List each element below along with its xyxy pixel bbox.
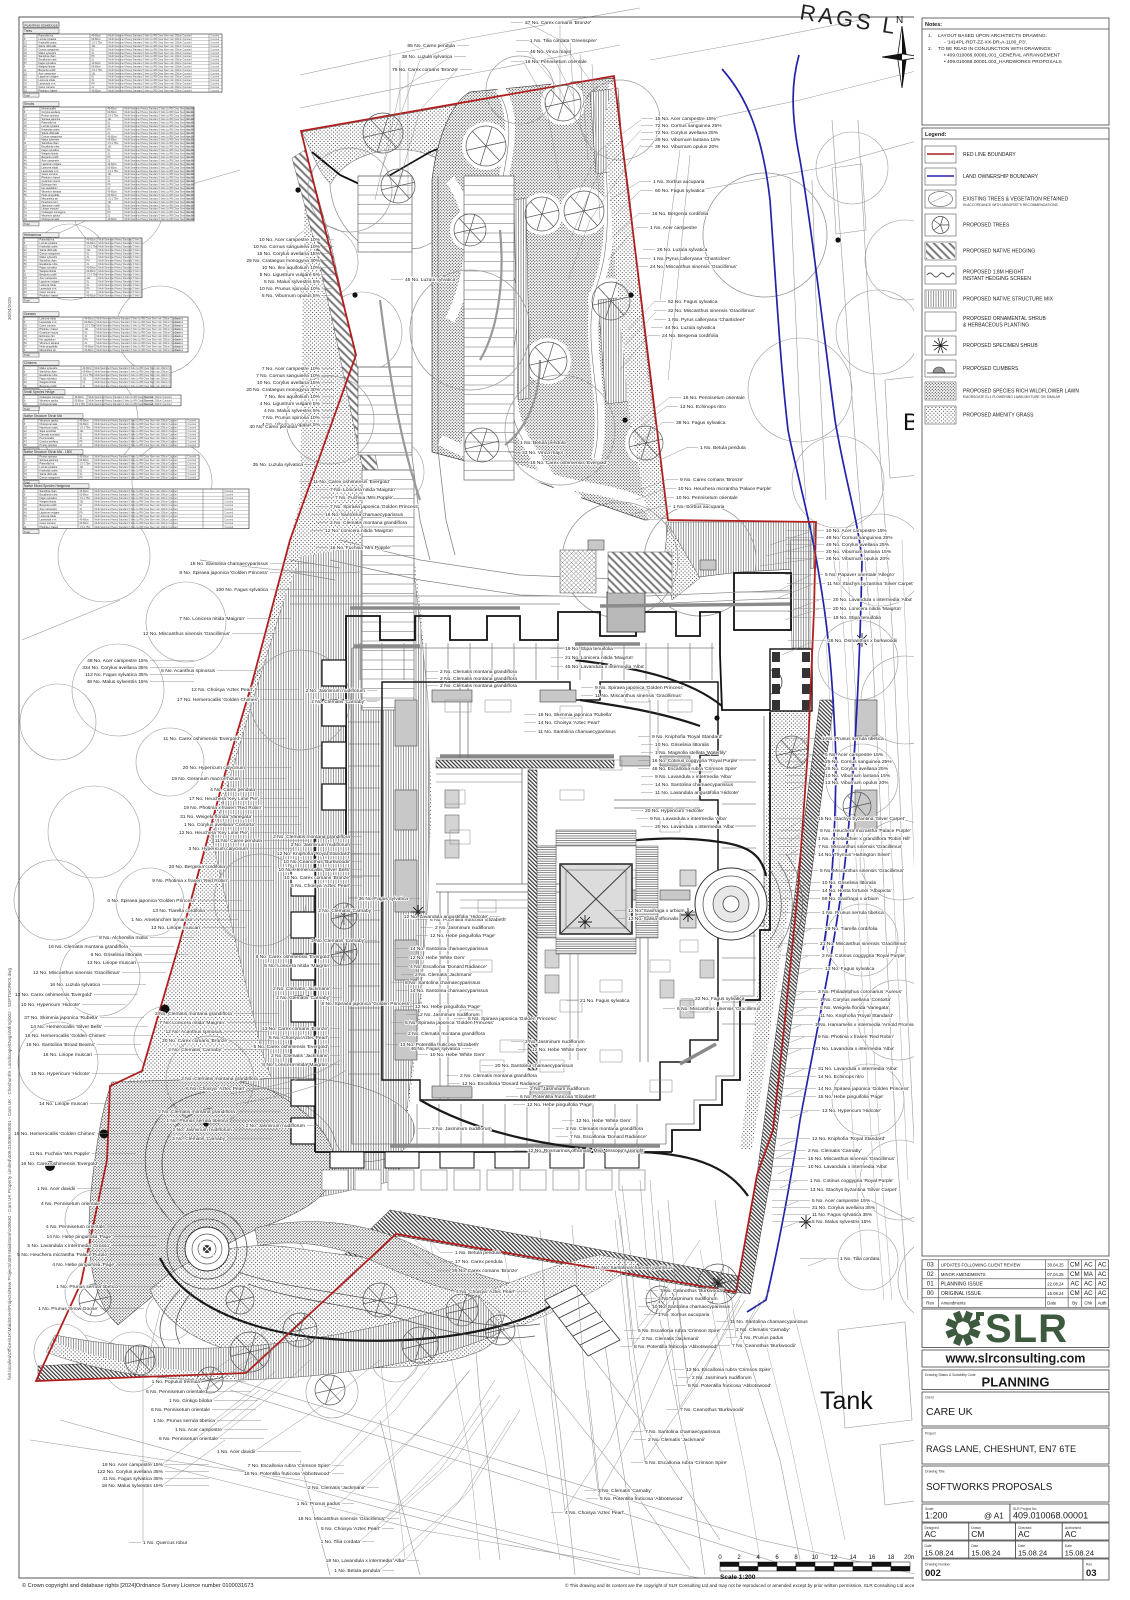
svg-text:Total: Total — [24, 407, 30, 411]
svg-text:Counted: Counted — [211, 62, 220, 65]
svg-text:Total: Total — [24, 93, 30, 97]
svg-text:Counted: Counted — [188, 441, 197, 444]
svg-text:26 No. Viburnum opulus 20%: 26 No. Viburnum opulus 20% — [826, 556, 890, 562]
svg-text:5 No. Papaver orientale 'Alleg: 5 No. Papaver orientale 'Allegro' — [825, 572, 895, 578]
svg-text:1 No. Corylus avellana 'Contor: 1 No. Corylus avellana 'Contorta' — [184, 822, 255, 828]
svg-text:5 No. Escallonia rubra 'Crimso: 5 No. Escallonia rubra 'Crimson Spire' — [645, 1460, 727, 1466]
svg-text:Counted: Counted — [225, 511, 234, 514]
svg-text:60-80cm: 60-80cm — [75, 399, 84, 402]
svg-text:& HERBACEOUS PLANTING: & HERBACEOUS PLANTING — [963, 322, 1029, 328]
svg-text:10 No. Heuchera micrantha 'Pal: 10 No. Heuchera micrantha 'Palace Purple… — [678, 486, 772, 492]
svg-text:11 No. Stachys byzantina 'Silv: 11 No. Stachys byzantina 'Silver Carpet' — [827, 581, 914, 587]
svg-text:8 No. Lonicera nitida 'Maigrün: 8 No. Lonicera nitida 'Maigrün' — [262, 1062, 328, 1068]
svg-text:1 No. Betula pendula: 1 No. Betula pendula — [455, 1250, 501, 1256]
svg-text:10 No. Santolina chamaecyparis: 10 No. Santolina chamaecyparissus — [652, 1304, 731, 1310]
svg-text:Counted: Counted — [188, 463, 197, 466]
svg-text:Multi-Stemmed Heavy Standard 3: Multi-Stemmed Heavy Standard 3 brks 1u R… — [95, 444, 179, 447]
svg-text:Rev: Rev — [926, 1301, 935, 1306]
svg-text:9 No. Photinia x fraseri 'Red: 9 No. Photinia x fraseri 'Red Robin' — [818, 1034, 894, 1040]
svg-text:Multi-Stemmed Heavy Standard 3: Multi-Stemmed Heavy Standard 3 brks 1u R… — [95, 367, 179, 370]
svg-text:www.slrconsulting.com: www.slrconsulting.com — [945, 1352, 1086, 1366]
svg-text:2 No. Clematis montana grandif: 2 No. Clematis montana grandiflora — [440, 669, 517, 675]
svg-text:15.08.24: 15.08.24 — [925, 1549, 954, 1558]
svg-text:13 No. Carex comans 'Bronze': 13 No. Carex comans 'Bronze' — [262, 1026, 328, 1032]
svg-text:Chk: Chk — [1084, 1301, 1093, 1306]
svg-text:38 No. Fagus sylvatica: 38 No. Fagus sylvatica — [676, 420, 726, 426]
svg-text:20 No. Bergenia cordifolia: 20 No. Bergenia cordifolia — [169, 864, 226, 870]
svg-text:7 No. Spiraea japonica 'Golden: 7 No. Spiraea japonica 'Golden Princess' — [330, 504, 419, 510]
svg-text:9 No. Kniphofia 'Royal Standar: 9 No. Kniphofia 'Royal Standard' — [652, 734, 722, 740]
svg-text:Counted: Counted — [225, 519, 234, 522]
svg-text:16 No. Hemerocallis 'Golden Ch: 16 No. Hemerocallis 'Golden Chimes' — [14, 1131, 95, 1137]
svg-text:46 No. Escallonia rubra 'Crims: 46 No. Escallonia rubra 'Crimson Spire' — [652, 766, 737, 772]
svg-text:79 No. Carex comans 'Bronze': 79 No. Carex comans 'Bronze' — [392, 67, 458, 73]
svg-text:PROPOSED NATIVE HEDGING: PROPOSED NATIVE HEDGING — [963, 249, 1035, 255]
svg-text:20 No. Hypericum 'Hidcote': 20 No. Hypericum 'Hidcote' — [645, 808, 704, 814]
svg-text:2 No. Clematis 'Jackmanii': 2 No. Clematis 'Jackmanii' — [648, 1437, 705, 1443]
svg-text:Counted: Counted — [225, 504, 234, 507]
svg-text:18 No. Miscanthus sinensis 'Gr: 18 No. Miscanthus sinensis 'Gracillimus' — [298, 1516, 385, 1522]
svg-text:7 No. Acer campestre 10%: 7 No. Acer campestre 10% — [262, 366, 321, 372]
svg-text:49 No. Corylus avellana 25%: 49 No. Corylus avellana 25% — [826, 542, 890, 548]
svg-text:20 No. Crataegus monogyna 30%: 20 No. Crataegus monogyna 30% — [246, 387, 320, 393]
svg-text:00: 00 — [927, 1290, 934, 1297]
svg-text:CM: CM — [1070, 1271, 1080, 1278]
svg-text:Fagus sylvatica: Fagus sylvatica — [40, 378, 58, 381]
svg-text:Multi-Stemmed Heavy Standard 3: Multi-Stemmed Heavy Standard 3 brks 1u R… — [95, 477, 179, 480]
svg-text:37 No. Skimmia japonica 'Rubel: 37 No. Skimmia japonica 'Rubella' — [24, 1015, 98, 1021]
svg-text:INSTANT HEDGING SCREEN: INSTANT HEDGING SCREEN — [963, 276, 1031, 282]
svg-text:21 No. Fagus sylvatica: 21 No. Fagus sylvatica — [580, 998, 630, 1004]
svg-text:1 No. Betula pendula: 1 No. Betula pendula — [334, 1568, 380, 1574]
svg-text:Counted: Counted — [211, 65, 220, 68]
svg-text:100 No. Fagus sylvatica: 100 No. Fagus sylvatica — [216, 587, 268, 593]
svg-text:Native Structure Shrub Mix - 1: Native Structure Shrub Mix - 1800 — [24, 450, 72, 454]
svg-text:CM: CM — [971, 1529, 984, 1539]
svg-text:8 No. Spiraea japonica 'Golden: 8 No. Spiraea japonica 'Golden Princess' — [468, 1016, 557, 1022]
svg-text:2 No. Clematis montana grandif: 2 No. Clematis montana grandiflora — [440, 683, 517, 689]
svg-text:Counted: Counted — [211, 89, 220, 92]
svg-text:13 No. Viburnum opulus 20%: 13 No. Viburnum opulus 20% — [825, 780, 889, 786]
svg-text:44 No. Luzula sylvatica: 44 No. Luzula sylvatica — [665, 325, 716, 331]
svg-text:12 No. Lavandula angustifolia: 12 No. Lavandula angustifolia 'Hidcote' — [404, 914, 488, 920]
svg-text:2 No. Jasminum nudiflorum: 2 No. Jasminum nudiflorum — [525, 1039, 585, 1045]
svg-text:10 No. Hebe 'White Gem': 10 No. Hebe 'White Gem' — [430, 1052, 485, 1058]
svg-text:Counted: Counted — [211, 83, 220, 86]
svg-text:45 No. Luzula sylvatica: 45 No. Luzula sylvatica — [405, 277, 456, 283]
svg-text:18 No. Acer campestre 15%: 18 No. Acer campestre 15% — [102, 1462, 164, 1468]
svg-text:2 No. Clematis 'Carnaby': 2 No. Clematis 'Carnaby' — [598, 1488, 652, 1494]
svg-text:Tank: Tank — [820, 1387, 873, 1415]
svg-text:33 No. Vinca major: 33 No. Vinca major — [522, 450, 564, 456]
svg-text:Counted: Counted — [225, 515, 234, 518]
svg-text:EXISTING TREES & VEGETATION RE: EXISTING TREES & VEGETATION RETAINED — [963, 197, 1069, 203]
svg-text:Cornus sanguinea: Cornus sanguinea — [40, 477, 61, 480]
svg-text:1 No. Pyrus calleryana 'Chanti: 1 No. Pyrus calleryana 'Chanticleer' — [668, 317, 745, 323]
svg-text:4 No. Carex pendula: 4 No. Carex pendula — [210, 787, 255, 793]
svg-text:10 No. Ilex aquifolium 10%: 10 No. Ilex aquifolium 10% — [262, 265, 321, 271]
svg-text:Ligustrum vulgare: Ligustrum vulgare — [40, 511, 60, 514]
svg-text:1 No. Ginkgo biloba: 1 No. Ginkgo biloba — [169, 1398, 212, 1404]
svg-text:- '1414PL-RDT-ZZ-XX-DR-A-11: - '1414PL-RDT-ZZ-XX-DR-A-1100_P3'. — [944, 40, 1027, 46]
svg-text:15.08.24: 15.08.24 — [971, 1549, 1000, 1558]
svg-text:14 No. Santolina chamaecyparis: 14 No. Santolina chamaecyparissus — [410, 988, 489, 994]
svg-text:02: 02 — [927, 1271, 934, 1278]
svg-text:Grasses: Grasses — [24, 312, 36, 316]
svg-text:AC: AC — [1084, 1281, 1093, 1288]
svg-text:Counted: Counted — [145, 396, 154, 399]
svg-text:7 No. Prunus spinosa 10%: 7 No. Prunus spinosa 10% — [262, 415, 321, 421]
svg-text:Date: Date — [1018, 1544, 1025, 1548]
svg-text:7 No. Lonicera nitida 'Maigrün: 7 No. Lonicera nitida 'Maigrün' — [330, 487, 396, 493]
svg-text:Counted: Counted — [188, 470, 197, 473]
svg-text:16 No. Carex oshimensis 'Everg: 16 No. Carex oshimensis 'Evergold' — [21, 1161, 98, 1167]
svg-text:21 No. Lonicera nitida 'Maigrü: 21 No. Lonicera nitida 'Maigrün' — [565, 655, 634, 661]
svg-text:By: By — [1072, 1301, 1078, 1306]
svg-text:Counted: Counted — [225, 522, 234, 525]
svg-text:2 No. Clematis montana grandif: 2 No. Clematis montana grandiflora — [330, 520, 407, 526]
svg-text:7 No. Santolina chamaecypariss: 7 No. Santolina chamaecyparissus — [645, 1429, 721, 1435]
svg-text:19 No. Stipa tenuifolia: 19 No. Stipa tenuifolia — [565, 646, 613, 652]
svg-text:SOFTWORKS PROPOSALS: SOFTWORKS PROPOSALS — [926, 1482, 1053, 1493]
svg-text:RED LINE BOUNDARY: RED LINE BOUNDARY — [963, 152, 1016, 158]
svg-text:40-60cm: 40-60cm — [75, 396, 84, 399]
svg-text:Multi-Stemmed Heavy Standard 3: Multi-Stemmed Heavy Standard 3 brks 1u R… — [89, 403, 173, 406]
svg-text:Acer campestre: Acer campestre — [40, 508, 58, 511]
svg-text:14 No. Liriope muscari: 14 No. Liriope muscari — [39, 1101, 88, 1107]
svg-text:2.: 2. — [928, 46, 932, 52]
svg-text:15.08.24: 15.08.24 — [1018, 1549, 1047, 1558]
svg-text:Counted: Counted — [188, 430, 197, 433]
svg-text:10 No. Carex comans 'Bronze': 10 No. Carex comans 'Bronze' — [284, 875, 350, 881]
svg-text:10 No. Acer campestre 15%: 10 No. Acer campestre 15% — [826, 528, 888, 534]
svg-text:1 No. Corylus avellana 'Contor: 1 No. Corylus avellana 'Contorta' — [820, 997, 891, 1003]
svg-text:10 No. Griselinia littoralis: 10 No. Griselinia littoralis — [822, 880, 877, 886]
svg-text:10 No. Corylus avellana 15%: 10 No. Corylus avellana 15% — [257, 380, 321, 386]
svg-text:11 No. Carex oshimensis 'Everg: 11 No. Carex oshimensis 'Evergold' — [163, 736, 240, 742]
svg-text:PROPOSED ORNAMENTAL SHRUB: PROPOSED ORNAMENTAL SHRUB — [963, 316, 1046, 322]
svg-text:6 No. Potentilla fruticosa 'El: 6 No. Potentilla fruticosa 'Elizabeth' — [520, 1094, 596, 1100]
svg-text:Photinia x fraseri: Photinia x fraseri — [39, 89, 58, 92]
svg-text:6 No. Pennisetum orientale: 6 No. Pennisetum orientale — [146, 1389, 205, 1395]
svg-text:2 No. Jasminum nudiflorum: 2 No. Jasminum nudiflorum — [432, 1126, 492, 1132]
svg-text:5 No. Malus sylvestris 15%: 5 No. Malus sylvestris 15% — [812, 1219, 871, 1225]
svg-text:13 No. Hebe 'White Gem': 13 No. Hebe 'White Gem' — [576, 1118, 631, 1124]
svg-text:Counted: Counted — [188, 473, 197, 476]
svg-text:15.08.24: 15.08.24 — [1065, 1549, 1094, 1558]
svg-text:1:200: 1:200 — [925, 1511, 948, 1521]
svg-text:Native Structure Shrub Mix: Native Structure Shrub Mix — [24, 414, 62, 418]
svg-text:5 No. Lonicera nitida 'Maigrün: 5 No. Lonicera nitida 'Maigrün' — [264, 963, 330, 969]
svg-text:60-80cm: 60-80cm — [85, 349, 94, 352]
svg-text:13 No. Hypericum 'Hidcote': 13 No. Hypericum 'Hidcote' — [822, 1108, 881, 1114]
svg-text:5 No. Viburnum opulus 5%: 5 No. Viburnum opulus 5% — [262, 293, 321, 299]
svg-text:40-60cm: 40-60cm — [80, 490, 89, 493]
svg-text:6 No. Miscanthus sinensis 'Gra: 6 No. Miscanthus sinensis 'Gracillimus' — [677, 1006, 761, 1012]
svg-text:2 No. Jasminum nudiflorum: 2 No. Jasminum nudiflorum — [658, 1296, 718, 1302]
svg-text:11 No. Lavandula angustifolia: 11 No. Lavandula angustifolia 'Hidcote' — [655, 790, 739, 796]
svg-text:Multi-Stemmed Heavy Standard 3: Multi-Stemmed Heavy Standard 3 brks 1u R… — [95, 501, 179, 504]
svg-text:41 No. Fagus sylvatica 35%: 41 No. Fagus sylvatica 35% — [102, 1476, 163, 1482]
svg-text:40-60cm: 40-60cm — [83, 367, 92, 370]
svg-text:Santolina cham.: Santolina cham. — [40, 370, 58, 373]
svg-text:5 No. Lavandula x intermedia ': 5 No. Lavandula x intermedia 'Grosso' — [27, 1243, 110, 1249]
svg-text:11 No. Santolina chamaecyparis: 11 No. Santolina chamaecyparissus — [730, 1319, 808, 1325]
svg-text:15 No. Hypericum 'Hidcote': 15 No. Hypericum 'Hidcote' — [31, 1071, 90, 1077]
svg-text:07.04.25: 07.04.25 — [1047, 1272, 1064, 1277]
svg-text:7 No. Escallonia 'Donard Radia: 7 No. Escallonia 'Donard Radiance' — [570, 1134, 647, 1140]
svg-text:Crataegus monogyna: Crataegus monogyna — [40, 396, 65, 399]
svg-text:40 No. Carex pendula: 40 No. Carex pendula — [249, 424, 297, 430]
svg-text:5 No. Ligustrum vulgare 5%: 5 No. Ligustrum vulgare 5% — [260, 272, 321, 278]
svg-text:Multi-Stemmed Heavy Standard 3: Multi-Stemmed Heavy Standard 3 brks 1u R… — [95, 374, 179, 377]
svg-text:Counted: Counted — [188, 459, 197, 462]
svg-text:Escallonia rubra: Escallonia rubra — [40, 374, 59, 377]
svg-text:14 No. Santolina chamaecyparis: 14 No. Santolina chamaecyparissus — [410, 946, 489, 952]
svg-text:20 No. Carex comans 'Bronze': 20 No. Carex comans 'Bronze' — [162, 1038, 228, 1044]
svg-text:45 No. Lavandula x intermedia: 45 No. Lavandula x intermedia 'Alba' — [565, 664, 644, 670]
svg-text:1 No. Sorbus aucuparia: 1 No. Sorbus aucuparia — [658, 1312, 710, 1318]
svg-text:Trees: Trees — [24, 29, 32, 33]
svg-text:CM: CM — [1070, 1262, 1080, 1269]
svg-text:25 No. Corylus avellana 25%: 25 No. Corylus avellana 25% — [825, 766, 889, 772]
svg-text:14 No. Choisya 'Aztec Pearl': 14 No. Choisya 'Aztec Pearl' — [538, 720, 600, 726]
svg-text:14 No. Spiraea japonica 'Golde: 14 No. Spiraea japonica 'Golden Princess… — [818, 1086, 909, 1092]
svg-text:2 No. Jasminum nudiflorum: 2 No. Jasminum nudiflorum — [305, 688, 365, 694]
svg-text:40-60cm: 40-60cm — [80, 519, 89, 522]
svg-text:Counted: Counted — [188, 444, 197, 447]
svg-text:2 No. Clematis montana grandif: 2 No. Clematis montana grandiflora — [566, 1126, 643, 1132]
svg-text:16 No. Santolina chamaecyparis: 16 No. Santolina chamaecyparissus — [325, 512, 404, 518]
svg-text:PROPOSED SPECIES RICH WILDFLOW: PROPOSED SPECIES RICH WILDFLOWER LAWN — [963, 389, 1079, 395]
svg-text:2 No. Clematis montana grandif: 2 No. Clematis montana grandiflora — [181, 1076, 258, 1082]
svg-text:Counted: Counted — [211, 35, 220, 38]
svg-text:1 No. Quercus robur: 1 No. Quercus robur — [143, 1540, 188, 1546]
svg-text:EMORSGATE EL1 FLOWERING LAWN M: EMORSGATE EL1 FLOWERING LAWN MIXTURE OR … — [963, 395, 1061, 399]
svg-text:Counted: Counted — [211, 38, 220, 41]
svg-text:Total: Total — [24, 299, 30, 303]
svg-text:PLANNING ISSUE: PLANNING ISSUE — [941, 1282, 984, 1288]
svg-text:Rev.: Rev. — [1086, 1563, 1093, 1567]
svg-text:6 No. Pennisetum orientale: 6 No. Pennisetum orientale — [151, 1407, 210, 1413]
svg-text:12 No. Rosmarinus officinalis: 12 No. Rosmarinus officinalis 'Miss Jess… — [528, 1148, 645, 1154]
svg-text:2 No. Clematis montana grandif: 2 No. Clematis montana grandiflora — [460, 1073, 537, 1079]
svg-text:2 No. Clematis 'Jackmanii': 2 No. Clematis 'Jackmanii' — [415, 972, 472, 978]
svg-text:AC: AC — [1098, 1271, 1107, 1278]
svg-text:IN ACCORDANCE WITH ARBORIST'S: IN ACCORDANCE WITH ARBORIST'S RECOMMENDA… — [963, 203, 1059, 207]
svg-text:8 No. Santolina chamaecypariss: 8 No. Santolina chamaecyparissus — [405, 980, 481, 986]
svg-text:26 No. Osmanthus x burkwoodii: 26 No. Osmanthus x burkwoodii — [828, 638, 897, 644]
svg-text:14 No. Hemerocallis 'Silver Be: 14 No. Hemerocallis 'Silver Bells' — [31, 1024, 103, 1030]
svg-text:Multi-Stemmed Heavy Standard 3: Multi-Stemmed Heavy Standard 3 brks 1u R… — [109, 89, 193, 92]
svg-text:13 No. Tiarella cordifolia: 13 No. Tiarella cordifolia — [153, 908, 206, 914]
svg-text:1 No. Cotinus coggygria 'Royal: 1 No. Cotinus coggygria 'Royal Purple' — [810, 1178, 893, 1184]
svg-text:20 No. Viburnum lantana 15%: 20 No. Viburnum lantana 15% — [826, 549, 892, 555]
svg-text:18 No. Lavandula x intermedia: 18 No. Lavandula x intermedia 'Alba' — [326, 1558, 405, 1564]
svg-text:1 No. Populus tremula: 1 No. Populus tremula — [152, 1379, 201, 1385]
svg-text:8 No. Spiraea japonica 'Golden: 8 No. Spiraea japonica 'Golden Princess' — [321, 1001, 410, 1007]
svg-text:10: 10 — [812, 1555, 819, 1561]
svg-text:Counted: Counted — [211, 48, 220, 51]
svg-text:16 No. Bergenia cordifolia: 16 No. Bergenia cordifolia — [652, 211, 709, 217]
svg-text:31 No. Lavandula x intermedia: 31 No. Lavandula x intermedia 'Alba' — [818, 1066, 897, 1072]
svg-text:Multi-Stemmed Heavy Standard 3: Multi-Stemmed Heavy Standard 3 brks 1u R… — [95, 522, 179, 525]
svg-text:5 No. Heuchera micrantha 'Pala: 5 No. Heuchera micrantha 'Palace Purple' — [17, 1252, 108, 1258]
svg-text:7 No. Fuchsia 'Mrs Popple': 7 No. Fuchsia 'Mrs Popple' — [335, 495, 393, 501]
svg-text:1 No. Betula pendula: 1 No. Betula pendula — [700, 445, 746, 451]
svg-text:20 No. Lavandula x intermedia: 20 No. Lavandula x intermedia 'Alba' — [655, 824, 734, 830]
svg-text:CARE UK: CARE UK — [926, 1406, 973, 1418]
svg-text:9 No. Lavandula x intermedia ': 9 No. Lavandula x intermedia 'Alba' — [650, 816, 727, 822]
svg-text:10 No. Ceanothus 'Burkwoodii': 10 No. Ceanothus 'Burkwoodii' — [283, 859, 350, 865]
svg-text:Counted: Counted — [211, 79, 220, 82]
svg-text:409.010068.00001: 409.010068.00001 — [1013, 1511, 1088, 1521]
svg-text:40-60cm: 40-60cm — [108, 218, 117, 221]
svg-text:7 No. Ceanothus 'Burkwoodii': 7 No. Ceanothus 'Burkwoodii' — [680, 1407, 744, 1413]
svg-text:31 No. Weigela florida 'Varieg: 31 No. Weigela florida 'Variegata' — [180, 814, 252, 820]
svg-text:11 No. Carex oshimensis 'Everg: 11 No. Carex oshimensis 'Evergold' — [313, 479, 390, 485]
svg-text:122 No. Corylus avellana 35%: 122 No. Corylus avellana 35% — [97, 1469, 163, 1475]
svg-text:14 No. Thymus 'Hartington Silv: 14 No. Thymus 'Hartington Silver' — [818, 852, 891, 858]
svg-text:Bergenia cordif.: Bergenia cordif. — [40, 504, 58, 507]
svg-text:30/04/2025: 30/04/2025 — [7, 297, 12, 320]
svg-text:N: N — [896, 15, 903, 26]
svg-text:60-80cm: 60-80cm — [80, 493, 89, 496]
svg-text:2 No. Jasminum nudiflorum: 2 No. Jasminum nudiflorum — [530, 1086, 590, 1092]
svg-text:5 No. Acer campestre 15%: 5 No. Acer campestre 15% — [812, 1198, 871, 1204]
svg-text:Counted: Counted — [145, 403, 154, 406]
svg-text:AC: AC — [1084, 1290, 1093, 1297]
svg-text:13 No. Stachys byzantina 'Silv: 13 No. Stachys byzantina 'Silver Carpet' — [810, 1187, 897, 1193]
svg-text:Counted: Counted — [188, 456, 197, 459]
svg-text:10 No. Acer campestre 10%: 10 No. Acer campestre 10% — [259, 237, 321, 243]
svg-text:48 No. Malus sylvestris 15%: 48 No. Malus sylvestris 15% — [87, 679, 149, 685]
svg-text:PROPOSED CLIMBERS: PROPOSED CLIMBERS — [963, 366, 1019, 372]
svg-text:Counted: Counted — [225, 501, 234, 504]
svg-text:Drawing Title: Drawing Title — [925, 1470, 945, 1474]
svg-text:Counted: Counted — [225, 493, 234, 496]
svg-text:Date: Date — [1047, 1301, 1057, 1306]
svg-text:15 No. Acer campestre 15%: 15 No. Acer campestre 15% — [655, 116, 717, 122]
svg-text:2 No. Clematis 'Jackmanii': 2 No. Clematis 'Jackmanii' — [273, 986, 330, 992]
svg-text:Counted: Counted — [188, 466, 197, 469]
svg-text:10 No. Hemerocallis 'Silver Be: 10 No. Hemerocallis 'Silver Bells' — [279, 867, 351, 873]
svg-text:8 No. Alchemilla mollis: 8 No. Alchemilla mollis — [99, 935, 148, 941]
svg-text:1 No. Acer campestre: 1 No. Acer campestre — [175, 1427, 222, 1433]
svg-text:13 No. Liriope muscari: 13 No. Liriope muscari — [87, 960, 136, 966]
svg-text:29 No. Viburnum lantana 15%: 29 No. Viburnum lantana 15% — [655, 137, 721, 143]
svg-text:Legend:: Legend: — [925, 132, 947, 138]
svg-text:Counted: Counted — [211, 45, 220, 48]
svg-text:16: 16 — [869, 1555, 876, 1561]
svg-text:29 No. Tiarella cordifolia: 29 No. Tiarella cordifolia — [825, 926, 878, 932]
svg-text:Total: Total — [24, 353, 30, 357]
svg-text:1 No. Sorbus aucuparia: 1 No. Sorbus aucuparia — [673, 504, 725, 510]
svg-text:Lavandula x int.: Lavandula x int. — [40, 519, 58, 522]
svg-text:© Crown copyright and database: © Crown copyright and database rights [2… — [22, 1582, 253, 1589]
svg-text:Fagus sylvatica: Fagus sylvatica — [40, 497, 58, 500]
svg-text:30.04.25: 30.04.25 — [1047, 1263, 1064, 1268]
svg-text:PROPOSED SPECIMEN SHRUB: PROPOSED SPECIMEN SHRUB — [963, 343, 1038, 349]
svg-text:AC: AC — [1098, 1262, 1107, 1269]
svg-text:Counted: Counted — [188, 434, 197, 437]
svg-text:AC: AC — [1098, 1281, 1107, 1288]
svg-text:Counted: Counted — [188, 427, 197, 430]
svg-text:13 No. Carex oshimensis 'Everg: 13 No. Carex oshimensis 'Evergold' — [15, 992, 92, 998]
svg-text:32 No. Miscanthus sinensis 'Gr: 32 No. Miscanthus sinensis 'Gracillimus' — [668, 308, 755, 314]
svg-text:1 No. Prunus serrula tibetica: 1 No. Prunus serrula tibetica — [56, 1284, 118, 1290]
svg-text:10 No. Pennisetum orientale: 10 No. Pennisetum orientale — [676, 495, 738, 501]
svg-text:Choisya ternata: Choisya ternata — [40, 403, 58, 406]
svg-text:RAGS LANE, CHESHUNT, EN7 6TE: RAGS LANE, CHESHUNT, EN7 6TE — [926, 1444, 1076, 1454]
svg-text:11 No. Kniphofia 'Royal Standa: 11 No. Kniphofia 'Royal Standard' — [820, 1013, 893, 1019]
svg-text:11 No. Carex pendula: 11 No. Carex pendula — [215, 838, 262, 844]
svg-text:39 No. Viburnum opulus 20%: 39 No. Viburnum opulus 20% — [655, 144, 719, 150]
svg-text:1 No. Prunus serrula tibetica: 1 No. Prunus serrula tibetica — [166, 1118, 228, 1124]
svg-text:Project: Project — [925, 1432, 936, 1436]
svg-text:1 No. Tilia cordata 'Greenspir: 1 No. Tilia cordata 'Greenspire' — [530, 38, 597, 44]
svg-text:Climbers: Climbers — [24, 361, 37, 365]
svg-text:40-60cm: 40-60cm — [87, 295, 96, 298]
svg-text:Counted: Counted — [225, 497, 234, 500]
svg-text:8 No. Potentilla fruticosa 'Ab: 8 No. Potentilla fruticosa 'Abbotswood' — [688, 1383, 771, 1389]
svg-text:5 No. Malus sylvestris 5%: 5 No. Malus sylvestris 5% — [264, 279, 321, 285]
svg-text:Viburnum opulus: Viburnum opulus — [40, 399, 59, 402]
svg-text:LAYOUT BASED UPON ARCHITECTS D: LAYOUT BASED UPON ARCHITECTS DRAWING: — [938, 33, 1047, 39]
svg-text:Drawing Number: Drawing Number — [925, 1563, 951, 1567]
svg-text:1 No. Magnolia stellata 'Water: 1 No. Magnolia stellata 'Waterlily' — [655, 750, 727, 756]
svg-text:AC: AC — [1065, 1529, 1077, 1539]
svg-text:8 No. Spiraea japonica 'Golden: 8 No. Spiraea japonica 'Golden Princess' — [179, 570, 268, 576]
svg-text:2 No. Clematis 'Jackmanii': 2 No. Clematis 'Jackmanii' — [271, 1053, 328, 1059]
svg-text:10L: 10L — [83, 378, 88, 381]
svg-text:1.: 1. — [928, 33, 932, 39]
svg-text:1 No. Prunus serrula tibetica: 1 No. Prunus serrula tibetica — [822, 910, 884, 916]
svg-text:Multi-Stemmed Heavy Standard 3: Multi-Stemmed Heavy Standard 3 brks 1u R… — [95, 385, 179, 388]
svg-text:12: 12 — [831, 1555, 838, 1561]
svg-text:1 No. Prunus padus: 1 No. Prunus padus — [740, 1335, 784, 1341]
svg-text:5 No. Choisya 'Aztec Pearl': 5 No. Choisya 'Aztec Pearl' — [291, 883, 350, 889]
svg-text:Multi-Stemmed Heavy Standard 3: Multi-Stemmed Heavy Standard 3 brks 1u R… — [95, 515, 179, 518]
svg-text:3 No. Hypericum calycinum: 3 No. Hypericum calycinum — [188, 846, 248, 852]
svg-text:15 No. Miscanthus sinensis 'Gr: 15 No. Miscanthus sinensis 'Gracillimus' — [808, 1156, 895, 1162]
svg-text:7 No. Escallonia rubra 'Crimso: 7 No. Escallonia rubra 'Crimson Spire' — [248, 1463, 330, 1469]
svg-text:11 No. Fuchsia 'Mrs Popple': 11 No. Fuchsia 'Mrs Popple' — [30, 1151, 91, 1157]
svg-text:12 No. Hebe 'White Gem': 12 No. Hebe 'White Gem' — [410, 955, 465, 961]
svg-text:4 No. Choisya 'Aztec Pearl': 4 No. Choisya 'Aztec Pearl' — [565, 1510, 624, 1516]
svg-text:Lonicera nitida: Lonicera nitida — [40, 515, 57, 518]
svg-text:03: 03 — [927, 1262, 934, 1269]
svg-text:Multi-Stemmed Heavy Standard 3: Multi-Stemmed Heavy Standard 3 brks 1u R… — [89, 396, 173, 399]
svg-text:72 No. Cornus sanguinea 25%: 72 No. Cornus sanguinea 25% — [655, 123, 722, 129]
svg-text:13 No. Fagus sylvatica: 13 No. Fagus sylvatica — [825, 966, 875, 972]
svg-text:1.5-1.75m: 1.5-1.75m — [75, 403, 86, 406]
svg-text:60-80cm: 60-80cm — [83, 370, 92, 373]
svg-text:2 No. Clematis 'Carnaby': 2 No. Clematis 'Carnaby' — [311, 938, 365, 944]
svg-text:AC: AC — [925, 1529, 937, 1539]
svg-text:Counted: Counted — [145, 399, 154, 402]
svg-text:16 No. Liriope muscari: 16 No. Liriope muscari — [43, 1052, 92, 1058]
svg-text:4 No. Hebe pinguifolia 'Page': 4 No. Hebe pinguifolia 'Page' — [52, 1262, 115, 1268]
svg-text:10 No. Viburnum lantana 15%: 10 No. Viburnum lantana 15% — [825, 773, 891, 779]
svg-text:2 No. Clematis montana grandif: 2 No. Clematis montana grandiflora — [158, 1109, 235, 1115]
svg-text:Counted: Counted — [225, 526, 234, 529]
svg-text:Counted: Counted — [211, 76, 220, 79]
svg-text:Choisya ternata: Choisya ternata — [42, 218, 60, 221]
svg-text:AC: AC — [1098, 1290, 1107, 1297]
svg-text:112 No. Fagus sylvatica 35%: 112 No. Fagus sylvatica 35% — [85, 672, 149, 678]
svg-text:16 No. Hemerocallis 'Golden Ch: 16 No. Hemerocallis 'Golden Chimes' — [25, 1033, 106, 1039]
